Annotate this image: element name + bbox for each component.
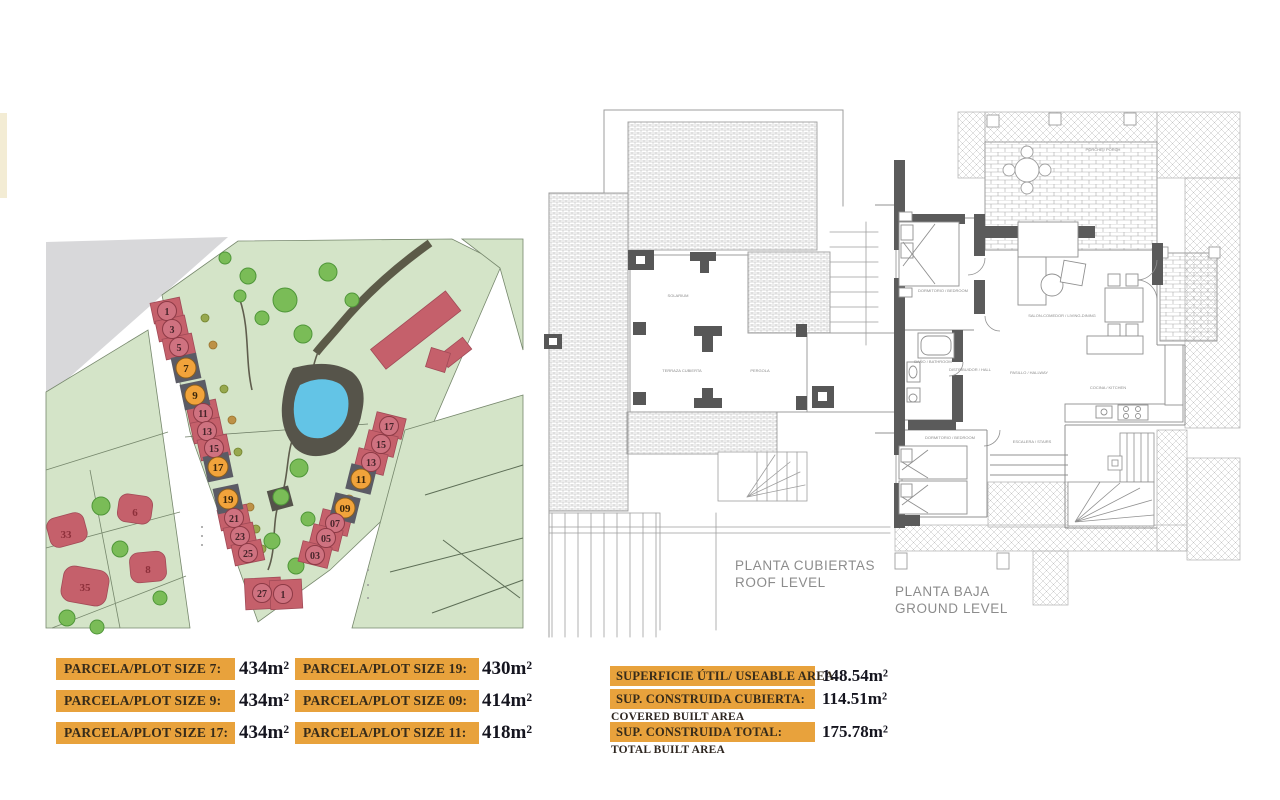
- plot-number: 8: [145, 564, 151, 576]
- roof-plan-caption-es: PLANTA CUBIERTAS: [735, 557, 875, 574]
- plot-number-highlight: 09: [340, 503, 352, 515]
- ground-stairs: [1068, 433, 1154, 526]
- room-label: BAÑO / BATHROOM: [914, 359, 951, 364]
- plot-size-value: 430m²: [482, 658, 532, 680]
- plot-size-label: PARCELA/PLOT SIZE 7:: [56, 658, 235, 680]
- roof-tiles-upper-right: [748, 252, 830, 333]
- sofa-set: [1018, 222, 1086, 305]
- plot-number: 35: [80, 582, 92, 594]
- plot-number-highlight: 17: [213, 462, 225, 474]
- plot-bottom-pair: 27 1: [244, 577, 303, 610]
- plot-number: 1: [165, 307, 170, 318]
- room-label: SALON-COMEDOR / LIVING-DINING: [1028, 313, 1096, 318]
- area-label: SUP. CONSTRUIDA TOTAL:: [610, 722, 815, 742]
- plot-number: 03: [310, 551, 320, 562]
- plot-number: 05: [321, 534, 331, 545]
- plot-number-highlight: 11: [356, 474, 366, 486]
- plot-number: 25: [243, 549, 253, 560]
- plot-number: 27: [257, 589, 267, 600]
- roof-tiles-left: [549, 193, 628, 511]
- beds-twin: [899, 446, 967, 514]
- area-label: SUPERFICIE ÚTIL/ USEABLE AREA:: [610, 666, 815, 686]
- roof-plan-caption: PLANTA CUBIERTAS ROOF LEVEL: [735, 557, 875, 591]
- plot-size-row: PARCELA/PLOT SIZE 9: 434m² PARCELA/PLOT …: [0, 690, 640, 712]
- plot-number-highlight: 7: [183, 363, 189, 375]
- plot-size-label: PARCELA/PLOT SIZE 11:: [295, 722, 479, 744]
- plot-number: 11: [198, 409, 207, 420]
- plot-number: 5: [177, 343, 182, 354]
- bathroom-fixtures: [907, 333, 954, 402]
- room-label: PASILLO / HALLWAY: [1010, 370, 1048, 375]
- plot-number: 6: [132, 507, 138, 519]
- ground-plan-caption: PLANTA BAJA GROUND LEVEL: [895, 583, 1008, 617]
- area-value: 114.51m²: [822, 689, 887, 709]
- kitchen-units: [1065, 336, 1183, 422]
- room-label: DORMITORIO / BEDROOM: [918, 288, 968, 293]
- plot-number: 23: [235, 532, 245, 543]
- pergola-rafters: [830, 222, 878, 345]
- ground-plan-caption-es: PLANTA BAJA: [895, 583, 1008, 600]
- roof-stairs: [718, 452, 807, 501]
- plot-size-row: PARCELA/PLOT SIZE 17: 434m² PARCELA/PLOT…: [0, 722, 640, 744]
- plot-size-label: PARCELA/PLOT SIZE 9:: [56, 690, 235, 712]
- plot-size-row: PARCELA/PLOT SIZE 7: 434m² PARCELA/PLOT …: [0, 658, 640, 680]
- roof-room-label: PERGOLA: [750, 368, 770, 373]
- plot-number-highlight: 9: [192, 390, 198, 402]
- roof-room-label: TERRAZA CUBIERTA: [662, 368, 702, 373]
- brochure-page: 1 3 5 7 9 11 13 15 17 19 21 23 25: [0, 0, 1280, 800]
- plot-size-value: 414m²: [482, 690, 532, 712]
- plot-number: 13: [366, 458, 376, 469]
- terrace-side: [1160, 253, 1217, 341]
- roof-plan-caption-en: ROOF LEVEL: [735, 574, 875, 591]
- plot-number: 15: [209, 444, 219, 455]
- room-label: PORCHE / PORCH: [1086, 147, 1121, 152]
- plot-number: 13: [202, 427, 212, 438]
- plot-size-value: 434m²: [239, 722, 289, 744]
- area-label: SUP. CONSTRUIDA CUBIERTA:: [610, 689, 815, 709]
- ground-plan-caption-en: GROUND LEVEL: [895, 600, 1008, 617]
- plot-number: 33: [61, 529, 73, 541]
- area-value: 175.78m²: [822, 722, 888, 742]
- plot-size-value: 434m²: [239, 658, 289, 680]
- plot-size-label: PARCELA/PLOT SIZE 19:: [295, 658, 479, 680]
- roof-tiles-lower: [627, 412, 777, 454]
- roof-tiles-top: [628, 122, 817, 250]
- area-sublabel: TOTAL BUILT AREA: [611, 744, 725, 757]
- plot-size-value: 418m²: [482, 722, 532, 744]
- plot-number: 1: [281, 590, 286, 601]
- plot-number: 21: [229, 514, 239, 525]
- room-label: COCINA / KITCHEN: [1090, 385, 1126, 390]
- bed-double: [899, 212, 959, 297]
- room-label: DISTRIBUIDOR / HALL: [949, 367, 992, 372]
- roof-room-label: SOLARIUM: [668, 293, 689, 298]
- area-value: 148.54m²: [822, 666, 888, 686]
- plot-size-value: 434m²: [239, 690, 289, 712]
- room-label: ESCALERA / STAIRS: [1013, 439, 1052, 444]
- plot-number-highlight: 19: [223, 494, 235, 506]
- ground-plan: DORMITORIO / BEDROOM SALON-COMEDOR / LIV…: [875, 112, 1240, 605]
- site-plan-map: 1 3 5 7 9 11 13 15 17 19 21 23 25: [45, 237, 523, 634]
- plot-number: 07: [330, 519, 340, 530]
- plot-size-label: PARCELA/PLOT SIZE 09:: [295, 690, 479, 712]
- plot-size-label: PARCELA/PLOT SIZE 17:: [56, 722, 235, 744]
- plot-number: 3: [170, 325, 175, 336]
- room-label: DORMITORIO / BEDROOM: [925, 435, 975, 440]
- plot-number: 15: [376, 440, 386, 451]
- dining-set: [1105, 274, 1143, 336]
- plot-number: 17: [384, 422, 394, 433]
